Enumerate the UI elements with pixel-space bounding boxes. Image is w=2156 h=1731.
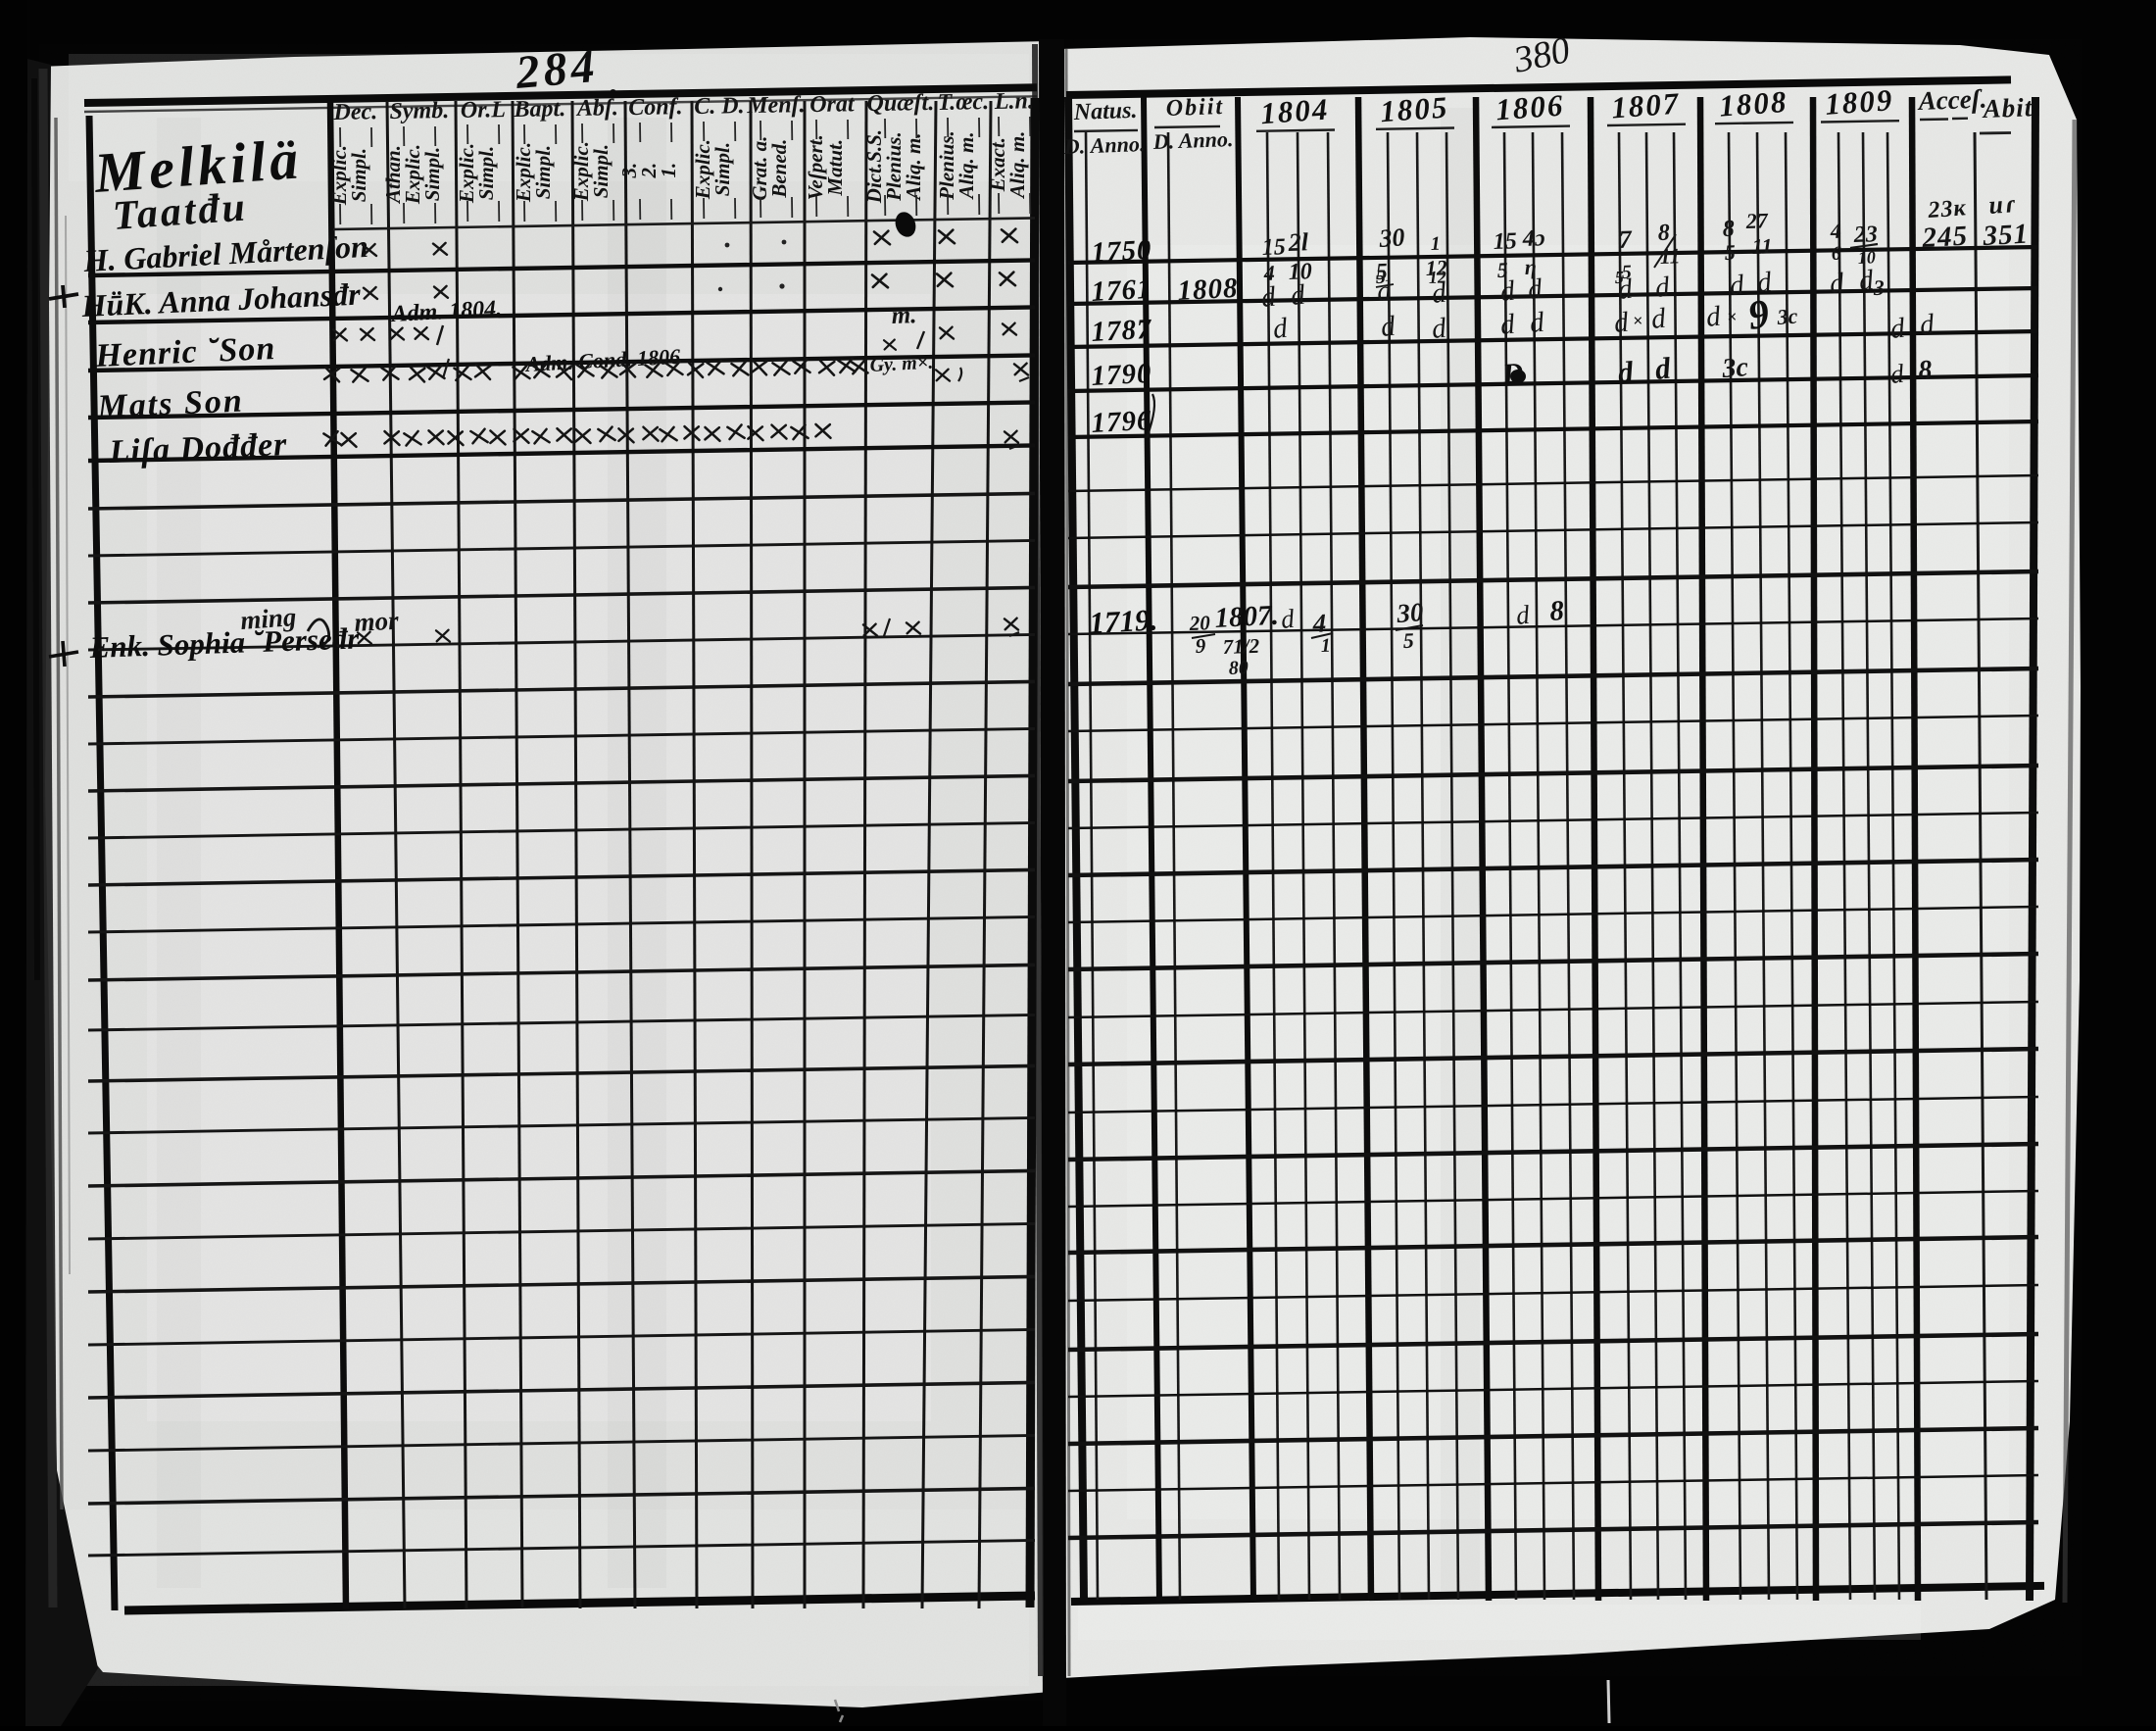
svg-text:1804: 1804 bbox=[1259, 91, 1330, 130]
svg-text:1796: 1796 bbox=[1091, 405, 1153, 439]
svg-text:Mats Son: Mats Son bbox=[96, 383, 245, 426]
svg-text:Abit: Abit bbox=[1981, 92, 2033, 124]
svg-text:Simpl.: Simpl. bbox=[347, 148, 370, 202]
svg-text:8: 8 bbox=[1657, 221, 1670, 246]
svg-text:Symb.: Symb. bbox=[389, 98, 449, 124]
svg-text:4ɔ: 4ɔ bbox=[1521, 225, 1545, 252]
svg-text:m.: m. bbox=[891, 302, 917, 329]
svg-text:1808: 1808 bbox=[1718, 84, 1788, 124]
svg-text:Matut.: Matut. bbox=[823, 139, 847, 197]
svg-text:1: 1 bbox=[1320, 635, 1331, 657]
svg-text:1750: 1750 bbox=[1091, 234, 1153, 269]
svg-text:30: 30 bbox=[1377, 223, 1405, 253]
svg-text:Natus.: Natus. bbox=[1072, 98, 1138, 125]
svg-text:Simpl.: Simpl. bbox=[710, 142, 734, 196]
svg-text:1807.: 1807. bbox=[1214, 600, 1280, 634]
svg-text:1787: 1787 bbox=[1091, 314, 1153, 348]
svg-text:Simpl.: Simpl. bbox=[420, 147, 444, 201]
svg-text:2l: 2l bbox=[1287, 227, 1309, 257]
svg-text:8: 8 bbox=[1548, 595, 1565, 627]
svg-text:D.: D. bbox=[1151, 128, 1174, 154]
svg-text:mor: mor bbox=[354, 606, 400, 637]
svg-text:C. D.: C. D. bbox=[694, 93, 745, 120]
svg-text:Dec.: Dec. bbox=[332, 99, 377, 125]
svg-text:Menſ.: Menſ. bbox=[746, 92, 806, 119]
svg-text:9: 9 bbox=[1195, 634, 1206, 658]
svg-text:6: 6 bbox=[1831, 243, 1841, 265]
svg-text:Quæſt.: Quæſt. bbox=[866, 90, 934, 117]
svg-text:11: 11 bbox=[1751, 233, 1773, 259]
svg-text:30: 30 bbox=[1395, 597, 1425, 628]
svg-text:12: 12 bbox=[1428, 267, 1446, 287]
svg-text:15: 15 bbox=[1261, 234, 1286, 261]
svg-text:3: 3 bbox=[1872, 275, 1885, 300]
svg-text:Or.L: Or.L bbox=[461, 97, 506, 124]
svg-text:Orat: Orat bbox=[809, 91, 856, 118]
svg-text:23к: 23к bbox=[1927, 195, 1968, 223]
svg-text:1: 1 bbox=[1430, 233, 1441, 255]
svg-text:Abſ.: Abſ. bbox=[575, 95, 618, 122]
svg-text:Acceſ.: Acceſ. bbox=[1916, 84, 1987, 116]
svg-text:1809: 1809 bbox=[1824, 82, 1894, 122]
svg-text:1.: 1. bbox=[657, 163, 680, 178]
svg-text:1719.: 1719. bbox=[1089, 602, 1158, 640]
svg-text:27: 27 bbox=[1744, 208, 1769, 233]
svg-text:8: 8 bbox=[1722, 217, 1735, 242]
svg-text:3c: 3c bbox=[1720, 352, 1749, 384]
svg-text:245: 245 bbox=[1921, 221, 1969, 254]
svg-text:1806: 1806 bbox=[1494, 88, 1565, 127]
svg-text:Gy. m×.: Gy. m×. bbox=[869, 352, 934, 376]
svg-text:7: 7 bbox=[1618, 225, 1633, 254]
svg-text:4: 4 bbox=[1311, 609, 1327, 638]
svg-text:uɾ: uɾ bbox=[1987, 189, 2018, 220]
svg-text:Taatđu: Taatđu bbox=[111, 184, 249, 239]
svg-text:Anno.: Anno. bbox=[1176, 126, 1233, 153]
svg-text:1761: 1761 bbox=[1091, 273, 1153, 308]
svg-text:71/2: 71/2 bbox=[1222, 634, 1260, 659]
svg-text:4: 4 bbox=[1829, 219, 1841, 243]
svg-text:L.n.: L.n. bbox=[994, 88, 1034, 115]
svg-text:284: 284 bbox=[513, 40, 600, 99]
svg-text:Aliq. m.: Aliq. m. bbox=[902, 132, 925, 201]
svg-text:Aliq. m.: Aliq. m. bbox=[955, 131, 978, 200]
svg-text:3c: 3c bbox=[1776, 304, 1799, 329]
svg-text:Obiit: Obiit bbox=[1165, 94, 1224, 122]
svg-text:Bapt.: Bapt. bbox=[513, 96, 565, 123]
svg-text:1807: 1807 bbox=[1610, 86, 1681, 125]
svg-text:1808: 1808 bbox=[1177, 272, 1240, 307]
svg-text:5: 5 bbox=[1614, 268, 1624, 287]
svg-text:D: D bbox=[1500, 358, 1524, 390]
svg-text:×: × bbox=[1633, 311, 1642, 330]
svg-text:×: × bbox=[1727, 307, 1737, 326]
svg-text:8: 8 bbox=[1917, 355, 1933, 386]
svg-text:T.œc.: T.œc. bbox=[937, 89, 989, 116]
svg-text:Simpl.: Simpl. bbox=[474, 146, 498, 200]
svg-text:Simpl.: Simpl. bbox=[589, 144, 612, 198]
svg-text:Aliq. m.: Aliq. m. bbox=[1005, 131, 1029, 200]
svg-text:5: 5 bbox=[1375, 267, 1386, 288]
svg-text:351: 351 bbox=[1982, 219, 2030, 252]
svg-text:Conf.: Conf. bbox=[628, 94, 683, 121]
svg-text:Anno.: Anno. bbox=[1088, 131, 1145, 158]
svg-text:D.: D. bbox=[1062, 133, 1085, 159]
svg-text:Simpl.: Simpl. bbox=[531, 145, 555, 199]
svg-text:1790: 1790 bbox=[1091, 358, 1153, 392]
svg-text:5: 5 bbox=[1724, 240, 1736, 265]
svg-text:80: 80 bbox=[1228, 657, 1249, 679]
svg-text:5: 5 bbox=[1402, 628, 1414, 653]
svg-text:15: 15 bbox=[1493, 228, 1517, 255]
svg-text:20: 20 bbox=[1188, 611, 1210, 635]
svg-text:1805: 1805 bbox=[1379, 89, 1449, 128]
svg-text:Bened.: Bened. bbox=[767, 139, 791, 199]
